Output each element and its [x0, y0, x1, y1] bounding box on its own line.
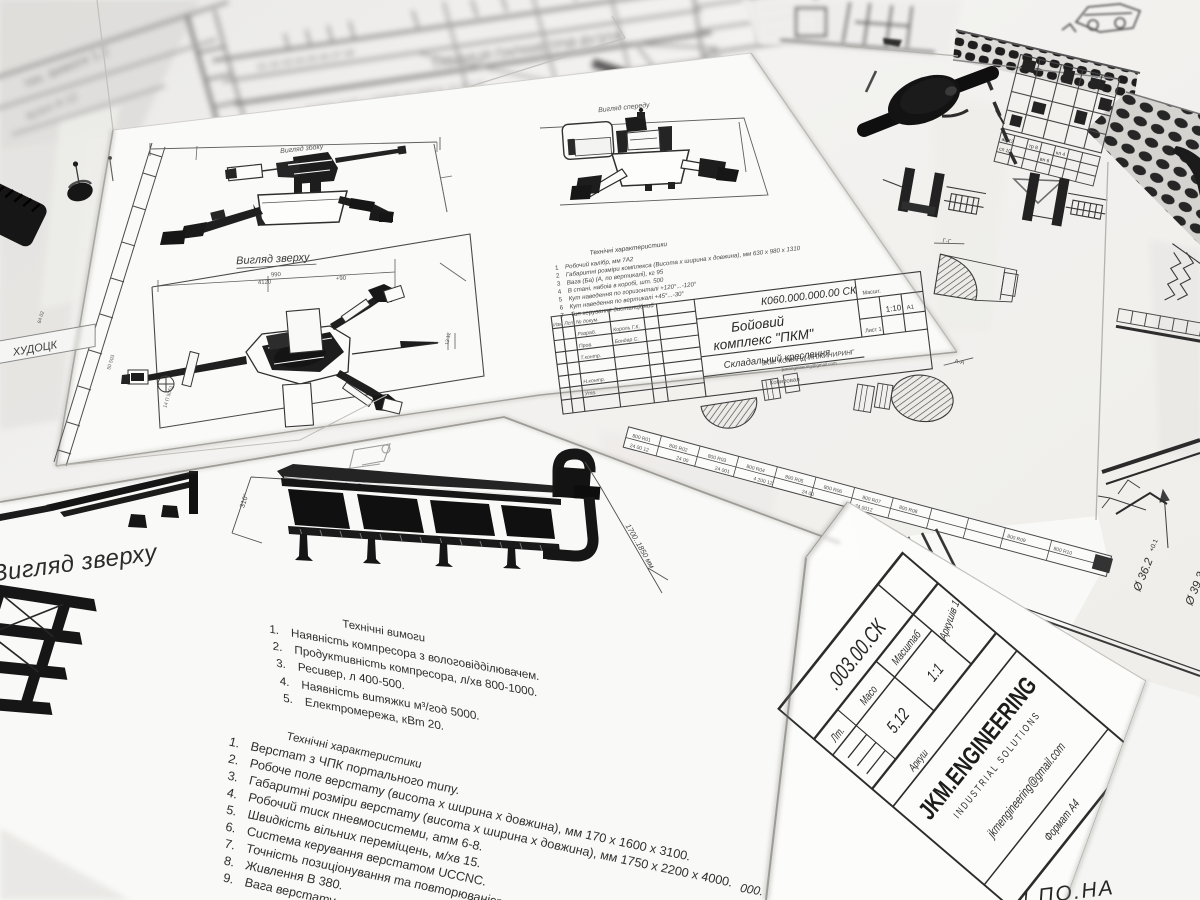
svg-text:5.: 5.: [226, 803, 237, 819]
svg-text:+90: +90: [336, 276, 347, 283]
svg-text:4.: 4.: [227, 786, 238, 802]
svg-text:А1: А1: [906, 304, 915, 311]
svg-text:990: 990: [271, 272, 282, 279]
svg-text:2.: 2.: [227, 751, 239, 767]
svg-text:3.: 3.: [227, 769, 238, 785]
svg-text:4120: 4120: [258, 279, 272, 286]
svg-text:9.: 9.: [223, 871, 234, 887]
svg-text:1.: 1.: [229, 735, 240, 751]
svg-text:8.: 8.: [224, 854, 235, 870]
svg-text:7.: 7.: [224, 837, 235, 853]
svg-text:6.: 6.: [225, 820, 236, 836]
